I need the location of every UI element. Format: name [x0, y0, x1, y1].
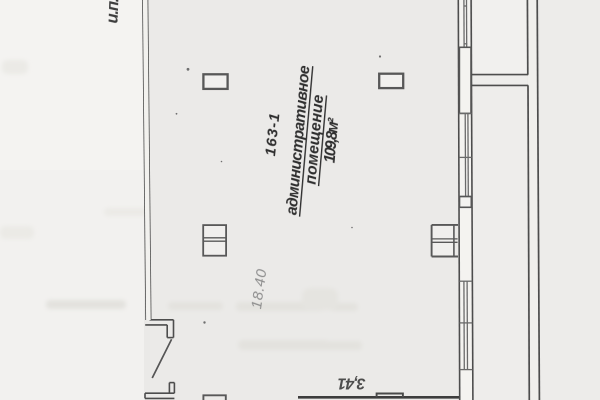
svg-text:3,41: 3,41	[337, 375, 365, 392]
svg-text:и.п.: и.п.	[104, 0, 123, 24]
